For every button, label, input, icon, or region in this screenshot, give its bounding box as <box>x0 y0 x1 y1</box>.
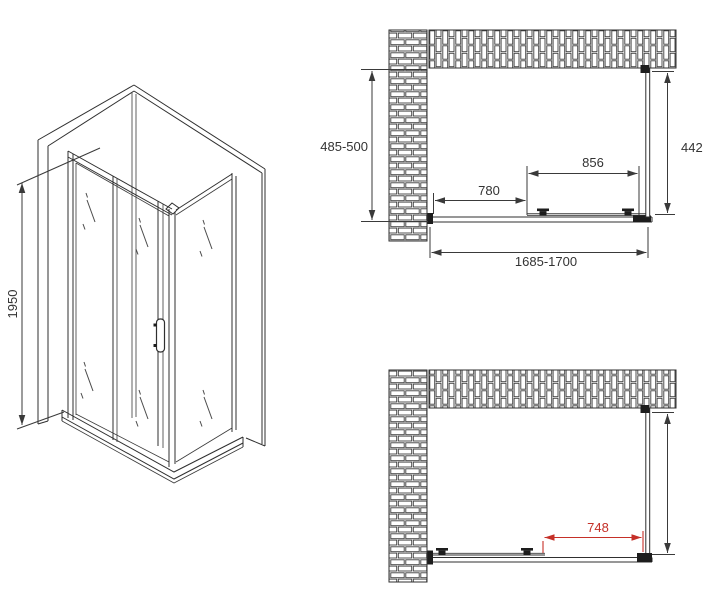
glass-sparkle <box>83 193 95 230</box>
bottom-track <box>428 558 652 563</box>
door-handle <box>154 319 165 352</box>
dimension-label-entry: 780 <box>478 183 500 198</box>
roller <box>521 548 533 555</box>
wall-bracket <box>641 65 650 73</box>
dimension-780: 780 <box>434 183 526 214</box>
shower-front-3d <box>62 151 243 483</box>
glass-sparkle <box>136 390 148 427</box>
plan-view-open: 748 <box>389 370 676 582</box>
dimension-label-panel: 442 <box>681 140 703 155</box>
isometric-view: 1950 <box>5 85 265 483</box>
roller <box>622 209 634 216</box>
brick-wall-left <box>389 30 427 241</box>
shower-enclosure-drawing: 1950 <box>0 0 710 600</box>
dimension-label-1950: 1950 <box>5 290 20 319</box>
door-panel-divider <box>113 176 117 442</box>
plan-view-closed: 485-500 442 856 780 1685-1700 <box>320 30 702 269</box>
glass-sparkles <box>81 193 212 427</box>
wall-back-3d <box>132 85 265 446</box>
dimension-label-total: 1685-1700 <box>515 254 577 269</box>
dimension-label-depth: 485-500 <box>320 139 368 154</box>
roller <box>537 209 549 216</box>
glass-sparkle <box>81 362 93 399</box>
base-tray <box>62 410 243 483</box>
side-panel <box>637 405 652 562</box>
glass-sparkle <box>136 218 148 255</box>
bottom-track <box>428 217 652 222</box>
dimension-1685-1700: 1685-1700 <box>430 227 648 269</box>
wall-profile <box>428 551 434 565</box>
corner-bracket <box>637 553 652 562</box>
technical-drawing-page: 1950 <box>0 0 710 600</box>
brick-wall-left <box>389 370 427 582</box>
side-panel <box>641 65 650 217</box>
dimension-748: 748 <box>543 520 643 553</box>
glass-sparkle <box>200 390 212 427</box>
dimension-442: 442 <box>652 72 703 215</box>
wall-profile <box>428 213 434 224</box>
roller <box>436 548 448 555</box>
glass-sparkle <box>200 220 212 257</box>
brick-wall-top <box>429 30 676 68</box>
sliding-door <box>527 209 651 223</box>
dimension-label-open: 748 <box>587 520 609 535</box>
dimension-side-unlabeled <box>652 413 675 555</box>
dimension-856: 856 <box>527 155 639 215</box>
dimension-label-door: 856 <box>582 155 604 170</box>
top-rail <box>68 151 172 209</box>
corner-post <box>166 203 179 467</box>
left-profile <box>68 151 76 420</box>
side-panel-3d <box>176 173 236 462</box>
wall-bracket <box>641 405 650 413</box>
dimension-1950: 1950 <box>5 148 100 429</box>
sliding-door <box>433 548 545 555</box>
brick-wall-top <box>429 370 676 408</box>
